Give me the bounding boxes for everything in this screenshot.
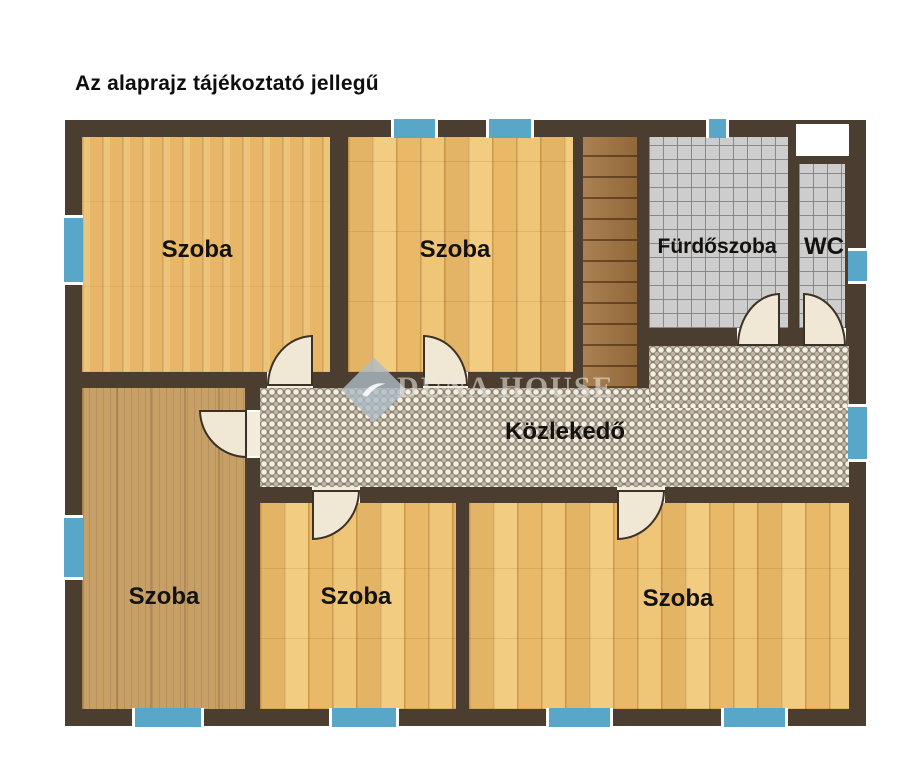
label-room-top-middle: Szoba [420, 236, 491, 264]
window-top-1 [391, 119, 438, 138]
label-bathroom: Fürdőszoba [658, 235, 777, 259]
label-room-bottom-middle: Szoba [321, 583, 392, 611]
window-bottom-2 [329, 708, 399, 727]
wc-niche [796, 124, 849, 156]
window-bottom-1 [132, 708, 204, 727]
window-right-wc [848, 248, 867, 284]
window-bottom-3 [546, 708, 613, 727]
label-hallway: Közlekedő [505, 418, 625, 446]
stairs-strip [583, 137, 637, 388]
label-room-top-left: Szoba [162, 236, 233, 264]
doorway-bottom-left-room [245, 410, 260, 458]
window-left-2 [64, 515, 83, 580]
window-left-1 [64, 215, 83, 285]
window-bottom-4 [721, 708, 788, 727]
hallway-right-arm [649, 346, 849, 408]
window-top-bathroom [706, 119, 729, 138]
label-room-bottom-right: Szoba [643, 585, 714, 613]
floorplan-image: Az alaprajz tájékoztató jellegű [0, 0, 919, 768]
window-right-hall [848, 404, 867, 462]
label-room-bottom-left: Szoba [129, 583, 200, 611]
floor-plan: Szoba Szoba Fürdőszoba WC Közlekedő Szob… [65, 120, 866, 726]
disclaimer-title: Az alaprajz tájékoztató jellegű [75, 72, 379, 96]
label-wc: WC [804, 233, 844, 261]
window-top-2 [486, 119, 534, 138]
